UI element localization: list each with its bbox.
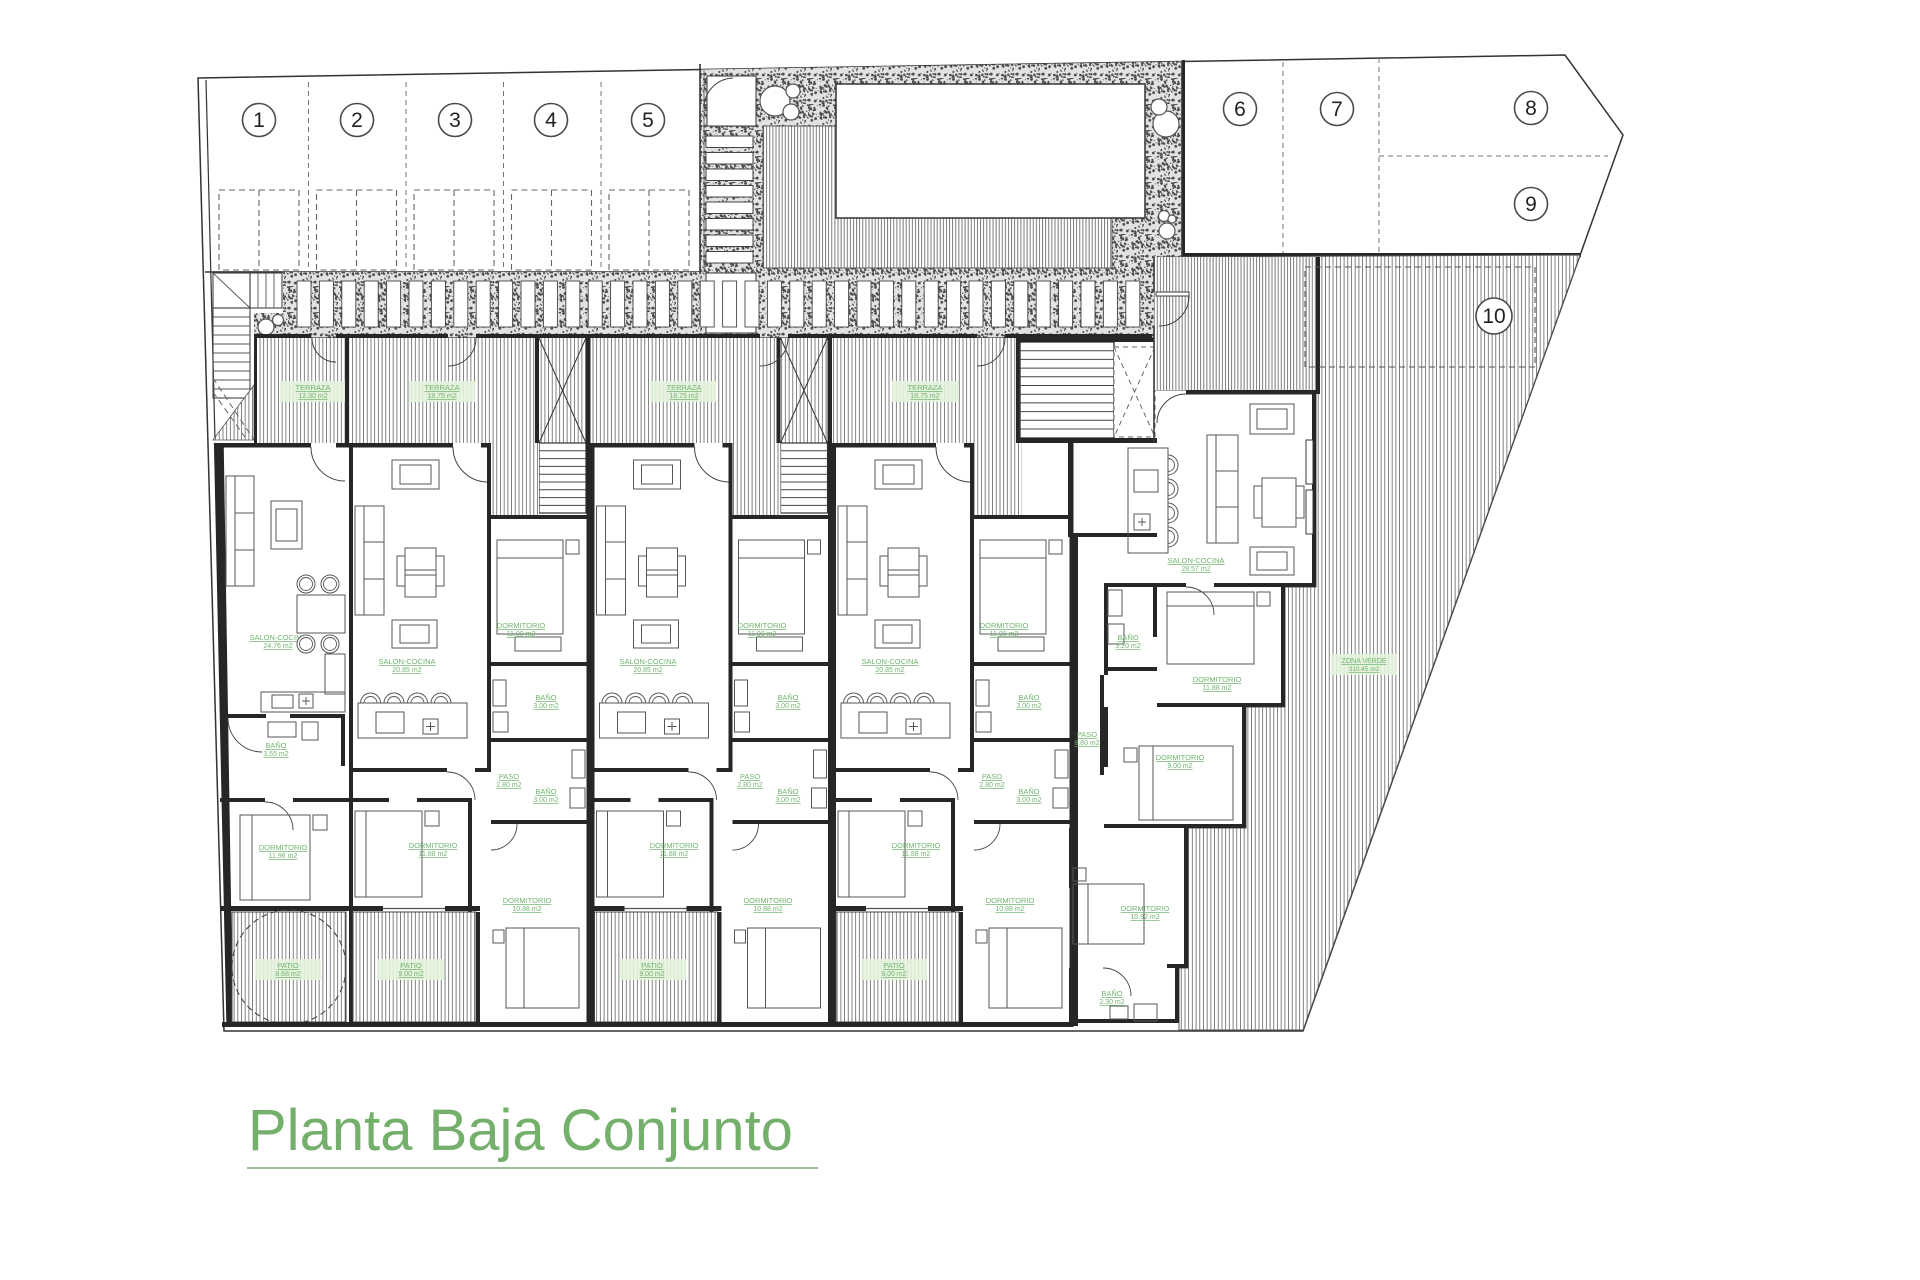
svg-text:DORMITORIO: DORMITORIO: [986, 896, 1035, 905]
svg-text:BAÑO: BAÑO: [265, 741, 286, 750]
svg-text:310.45 m2: 310.45 m2: [1349, 666, 1380, 673]
svg-text:BAÑO: BAÑO: [777, 787, 798, 796]
svg-text:12.30 m2: 12.30 m2: [298, 393, 327, 400]
svg-text:9.00 m2: 9.00 m2: [1167, 763, 1192, 770]
svg-text:8.80 m2: 8.80 m2: [1074, 740, 1099, 747]
svg-text:DORMITORIO: DORMITORIO: [650, 841, 699, 850]
svg-text:TERRAZA: TERRAZA: [424, 383, 459, 392]
svg-text:8.68 m2: 8.68 m2: [275, 971, 300, 978]
svg-text:BAÑO: BAÑO: [535, 693, 556, 702]
svg-text:10: 10: [1482, 305, 1505, 328]
svg-text:18.75 m2: 18.75 m2: [427, 393, 456, 400]
svg-text:DORMITORIO: DORMITORIO: [738, 621, 787, 630]
svg-text:10.88 m2: 10.88 m2: [995, 906, 1024, 913]
svg-text:9: 9: [1525, 193, 1537, 216]
svg-text:18.75 m2: 18.75 m2: [910, 393, 939, 400]
svg-text:3.00 m2: 3.00 m2: [775, 797, 800, 804]
svg-text:11.96 m2: 11.96 m2: [269, 853, 298, 860]
svg-text:3.00 m2: 3.00 m2: [1016, 703, 1041, 710]
svg-text:11.88 m2: 11.88 m2: [902, 851, 931, 858]
svg-text:11.00 m2: 11.00 m2: [507, 631, 536, 638]
svg-text:20.85 m2: 20.85 m2: [392, 667, 421, 674]
svg-text:20.85 m2: 20.85 m2: [633, 667, 662, 674]
svg-text:SALON-COCINA: SALON-COCINA: [1167, 556, 1224, 565]
svg-text:1: 1: [253, 109, 265, 132]
svg-text:20.85 m2: 20.85 m2: [875, 667, 904, 674]
svg-text:TERRAZA: TERRAZA: [666, 383, 701, 392]
svg-text:PATIO: PATIO: [277, 961, 299, 970]
svg-text:BAÑO: BAÑO: [1101, 989, 1122, 998]
svg-text:10.92 m2: 10.92 m2: [1130, 914, 1159, 921]
svg-text:DORMITORIO: DORMITORIO: [1121, 904, 1170, 913]
svg-text:10.88 m2: 10.88 m2: [753, 906, 782, 913]
svg-text:2.80 m2: 2.80 m2: [737, 782, 762, 789]
svg-text:7: 7: [1331, 98, 1343, 121]
svg-text:DORMITORIO: DORMITORIO: [503, 896, 552, 905]
svg-text:SALON-COCINA: SALON-COCINA: [619, 657, 676, 666]
svg-text:DORMITORIO: DORMITORIO: [409, 841, 458, 850]
svg-text:8: 8: [1525, 97, 1537, 120]
svg-text:Planta Baja Conjunto: Planta Baja Conjunto: [248, 1098, 793, 1163]
svg-text:PASO: PASO: [499, 772, 519, 781]
svg-text:PATIO: PATIO: [400, 961, 422, 970]
svg-text:3: 3: [449, 109, 461, 132]
svg-text:SALON-COCINA: SALON-COCINA: [378, 657, 435, 666]
svg-text:3.00 m2: 3.00 m2: [533, 703, 558, 710]
svg-text:DORMITORIO: DORMITORIO: [259, 843, 308, 852]
svg-text:24.76 m2: 24.76 m2: [263, 643, 292, 650]
svg-text:11.00 m2: 11.00 m2: [990, 631, 1019, 638]
svg-text:2: 2: [351, 109, 363, 132]
svg-text:DORMITORIO: DORMITORIO: [892, 841, 941, 850]
svg-text:PATIO: PATIO: [883, 961, 905, 970]
svg-text:BAÑO: BAÑO: [777, 693, 798, 702]
svg-text:BAÑO: BAÑO: [1117, 633, 1138, 642]
svg-text:PASO: PASO: [740, 772, 760, 781]
svg-text:DORMITORIO: DORMITORIO: [980, 621, 1029, 630]
svg-text:3.20 m2: 3.20 m2: [1115, 643, 1140, 650]
svg-text:11.88 m2: 11.88 m2: [660, 851, 689, 858]
svg-text:DORMITORIO: DORMITORIO: [497, 621, 546, 630]
svg-text:2.30 m2: 2.30 m2: [1099, 999, 1124, 1006]
svg-text:28.57 m2: 28.57 m2: [1181, 566, 1210, 573]
svg-text:PASO: PASO: [982, 772, 1002, 781]
svg-text:9.00 m2: 9.00 m2: [881, 971, 906, 978]
svg-text:BAÑO: BAÑO: [535, 787, 556, 796]
svg-text:3.00 m2: 3.00 m2: [775, 703, 800, 710]
svg-text:SALON-COCINA: SALON-COCINA: [861, 657, 918, 666]
svg-text:9.00 m2: 9.00 m2: [398, 971, 423, 978]
svg-text:5: 5: [642, 109, 654, 132]
svg-text:11.88 m2: 11.88 m2: [419, 851, 448, 858]
svg-text:2.80 m2: 2.80 m2: [979, 782, 1004, 789]
svg-text:18.75 m2: 18.75 m2: [669, 393, 698, 400]
svg-text:DORMITORIO: DORMITORIO: [744, 896, 793, 905]
svg-text:ZONA VERDE: ZONA VERDE: [1341, 658, 1386, 665]
svg-text:3.55 m2: 3.55 m2: [263, 751, 288, 758]
svg-text:11.00 m2: 11.00 m2: [748, 631, 777, 638]
svg-text:10.88 m2: 10.88 m2: [512, 906, 541, 913]
svg-text:BAÑO: BAÑO: [1018, 693, 1039, 702]
svg-text:2.80 m2: 2.80 m2: [496, 782, 521, 789]
svg-text:DORMITORIO: DORMITORIO: [1156, 753, 1205, 762]
svg-text:BAÑO: BAÑO: [1018, 787, 1039, 796]
svg-text:9.00 m2: 9.00 m2: [639, 971, 664, 978]
svg-text:6: 6: [1234, 98, 1246, 121]
svg-text:11.88 m2: 11.88 m2: [1203, 685, 1232, 692]
svg-text:3.00 m2: 3.00 m2: [1016, 797, 1041, 804]
svg-text:PASO: PASO: [1077, 730, 1097, 739]
svg-text:TERRAZA: TERRAZA: [295, 383, 330, 392]
svg-text:DORMITORIO: DORMITORIO: [1193, 675, 1242, 684]
svg-text:TERRAZA: TERRAZA: [907, 383, 942, 392]
svg-text:3.00 m2: 3.00 m2: [533, 797, 558, 804]
svg-text:PATIO: PATIO: [641, 961, 663, 970]
svg-text:4: 4: [545, 109, 557, 132]
